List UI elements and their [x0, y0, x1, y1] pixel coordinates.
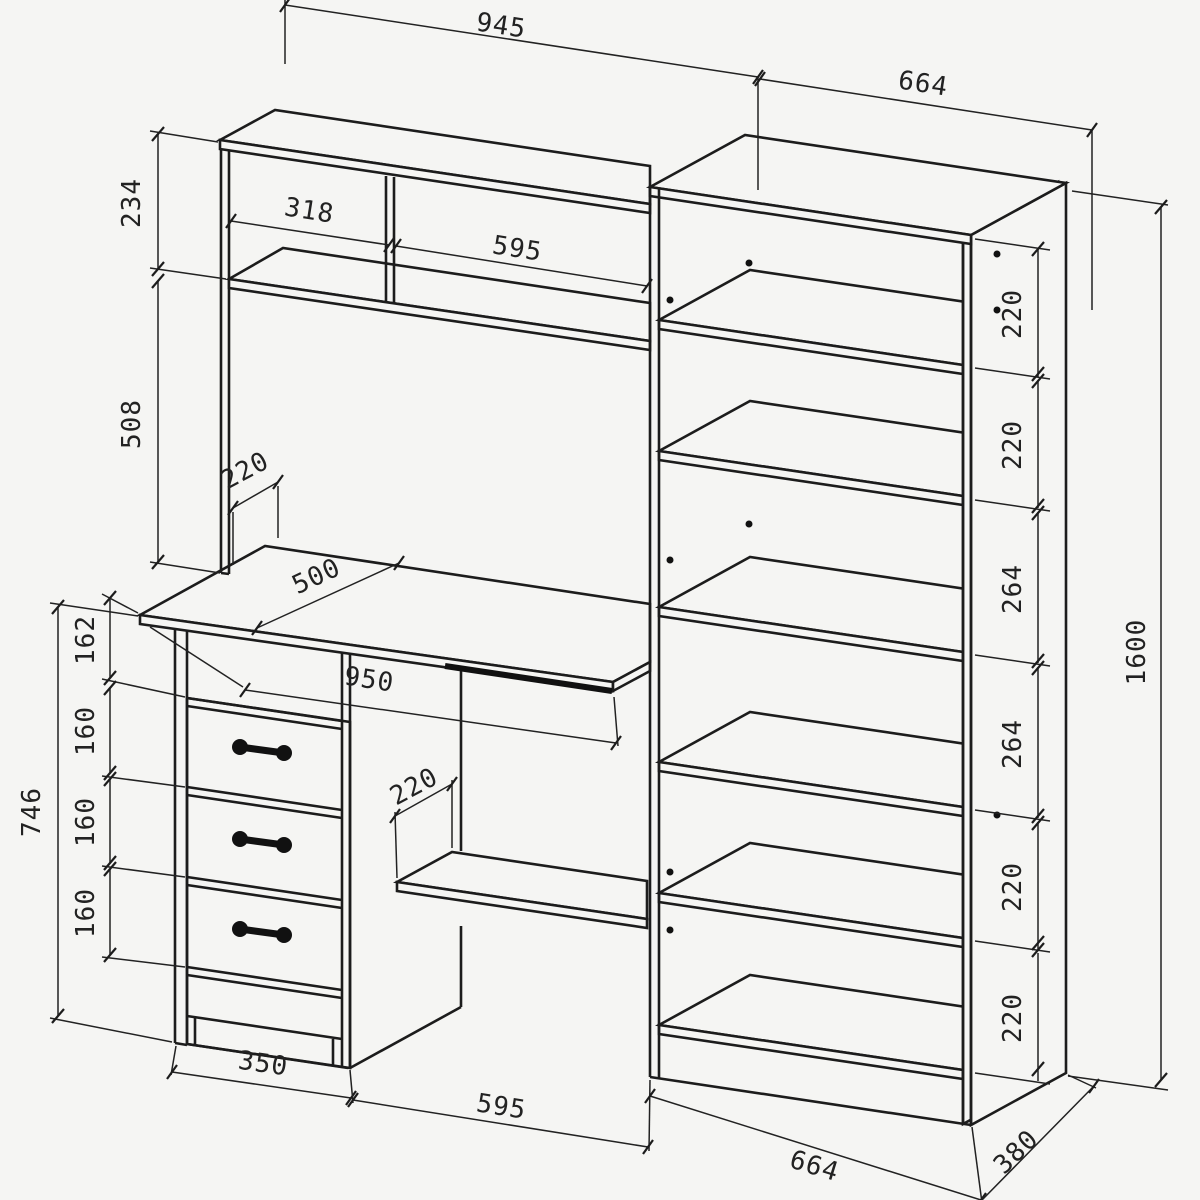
dim-label-160-2: 160 — [71, 797, 101, 847]
bookcase — [650, 135, 1066, 1125]
dim-label-664-top: 664 — [896, 66, 950, 103]
dim-hutch-bottom-section: 508 — [117, 274, 220, 573]
dim-label-160-3: 160 — [71, 888, 101, 938]
dim-label-350: 350 — [236, 1046, 290, 1083]
dim-label-160-1: 160 — [71, 706, 101, 756]
dim-label-162: 162 — [71, 615, 101, 665]
dim-label-space-2: 220 — [998, 420, 1028, 470]
dim-hutch-top-section: 234 — [117, 127, 226, 279]
drawing-canvas: 945 664 234 508 — [0, 0, 1200, 1200]
desk — [140, 546, 650, 1068]
dim-label-space-3: 264 — [998, 564, 1028, 614]
dim-label-945: 945 — [474, 8, 528, 45]
dim-label-space-5: 220 — [998, 862, 1028, 912]
dim-label-746: 746 — [17, 787, 47, 837]
dim-label-664-floor: 664 — [786, 1145, 843, 1188]
dim-left-cubby: 318 — [226, 192, 394, 252]
dim-drawer-pitches: 160 160 160 — [71, 681, 185, 967]
dim-label-space-6: 220 — [998, 993, 1028, 1043]
hutch-top-board — [220, 110, 650, 213]
desk-left-side-panel — [175, 628, 187, 1045]
bookcase-floor-edge — [650, 1077, 971, 1125]
dim-label-space-1: 220 — [998, 289, 1028, 339]
dim-label-380: 380 — [988, 1124, 1045, 1180]
dim-knee-space: 595 — [348, 1070, 653, 1154]
dim-bookcase-height: 1600 — [1068, 191, 1168, 1090]
dim-label-space-4: 264 — [998, 719, 1028, 769]
hutch — [220, 110, 650, 574]
dim-label-234: 234 — [117, 178, 147, 228]
dim-label-318: 318 — [282, 192, 336, 229]
desk-under-shelf — [397, 852, 647, 928]
dim-bookcase-width-bottom: 664 — [645, 1089, 986, 1200]
hutch-shelf — [229, 248, 650, 350]
dim-label-508: 508 — [117, 399, 147, 449]
dim-label-1600: 1600 — [1122, 619, 1152, 686]
drawer-pedestal — [187, 652, 350, 1068]
furniture-dimension-drawing: 945 664 234 508 — [0, 0, 1200, 1200]
hutch-left-panel — [221, 141, 229, 574]
